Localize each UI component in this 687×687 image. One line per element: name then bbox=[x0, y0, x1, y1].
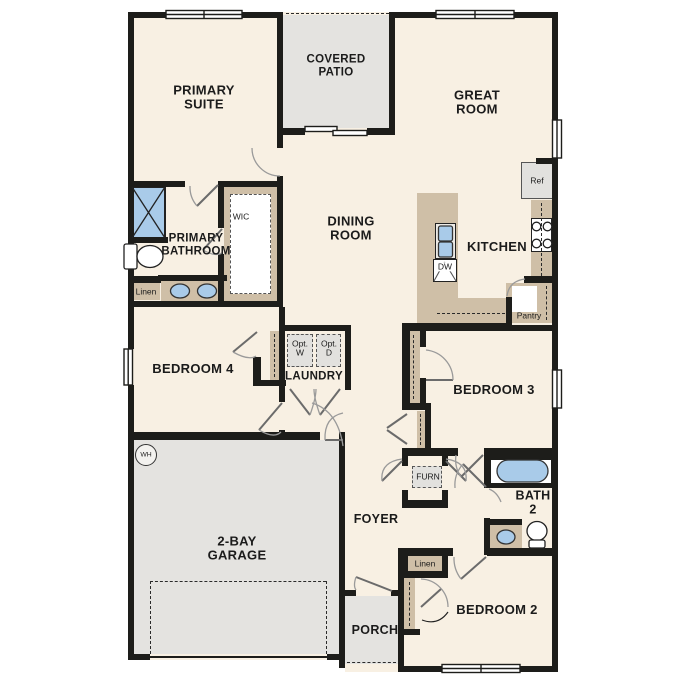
room-label-porch: PORCH bbox=[352, 624, 399, 638]
wall bbox=[402, 456, 408, 466]
wall bbox=[367, 128, 395, 135]
room-label-laundry: LAUNDRY bbox=[285, 371, 343, 384]
garage-door-threshold bbox=[150, 656, 327, 658]
room-label-linen-bath: Linen bbox=[136, 287, 157, 296]
wall bbox=[285, 325, 351, 331]
room-label-bedroom-4: BEDROOM 4 bbox=[152, 362, 233, 376]
room-label-bath-2: BATH 2 bbox=[516, 489, 551, 517]
garage-door-line-left bbox=[150, 581, 151, 654]
porch-open-edge bbox=[347, 662, 396, 663]
kitchen-island-counter-south bbox=[458, 298, 506, 323]
wall bbox=[339, 432, 345, 668]
room-label-primary-bathroom: PRIMARY BATHROOM bbox=[161, 232, 230, 257]
wall bbox=[490, 519, 522, 525]
wall bbox=[128, 301, 283, 307]
wall bbox=[520, 666, 558, 672]
wall bbox=[442, 490, 448, 500]
wall bbox=[283, 128, 305, 135]
bath2-vanity bbox=[490, 525, 522, 548]
wall bbox=[524, 276, 558, 283]
wall bbox=[128, 432, 320, 440]
room-label-bedroom-2: BEDROOM 2 bbox=[456, 603, 537, 617]
wall bbox=[345, 325, 351, 390]
wall bbox=[391, 590, 398, 596]
bedroom4-closet-line bbox=[274, 334, 275, 377]
shower bbox=[131, 186, 166, 239]
label-furnace: FURN bbox=[416, 472, 440, 481]
hall-closet-line bbox=[420, 414, 421, 445]
bath-vanity bbox=[161, 281, 220, 301]
wall bbox=[158, 275, 227, 281]
wall bbox=[402, 500, 448, 508]
wall bbox=[398, 548, 453, 556]
patio-open-edge bbox=[286, 13, 389, 14]
wall bbox=[345, 590, 356, 596]
floor-plan: PRIMARY SUITE COVERED PATIO GREAT ROOM D… bbox=[0, 0, 687, 687]
wall bbox=[128, 181, 185, 187]
room-label-kitchen: KITCHEN bbox=[467, 240, 527, 254]
wall bbox=[402, 490, 408, 500]
wall bbox=[218, 181, 283, 187]
wall bbox=[128, 276, 161, 283]
wall bbox=[410, 325, 558, 331]
wall bbox=[402, 448, 458, 456]
wall bbox=[391, 12, 436, 18]
label-dishwasher: DW bbox=[437, 262, 453, 271]
room-label-dining-room: DINING ROOM bbox=[327, 215, 374, 244]
wall bbox=[536, 158, 558, 164]
room-label-foyer: FOYER bbox=[354, 513, 399, 527]
label-opt-washer: Opt. W bbox=[292, 340, 308, 359]
tub-deck bbox=[491, 460, 551, 483]
wall bbox=[128, 654, 150, 660]
wall bbox=[277, 176, 283, 307]
label-refrigerator: Ref bbox=[530, 176, 543, 185]
room-label-bedroom-3: BEDROOM 3 bbox=[453, 383, 534, 397]
wic-shelf-line bbox=[230, 194, 271, 294]
garage-door-line-right bbox=[326, 581, 327, 654]
wall bbox=[218, 187, 224, 228]
wall bbox=[442, 456, 448, 466]
pantry-interior bbox=[512, 286, 537, 312]
wall bbox=[506, 297, 512, 328]
island-sink-box bbox=[435, 223, 456, 259]
wall bbox=[398, 629, 420, 635]
room-label-primary-suite: PRIMARY SUITE bbox=[173, 84, 235, 113]
wall bbox=[279, 383, 285, 402]
wall bbox=[420, 378, 426, 405]
wall bbox=[420, 331, 426, 347]
hall-closet-shelf bbox=[417, 411, 425, 448]
wall bbox=[128, 385, 134, 660]
room-label-garage: 2-BAY GARAGE bbox=[208, 535, 267, 564]
wall bbox=[487, 548, 558, 556]
room-label-wic: WIC bbox=[233, 212, 250, 221]
garage-door-line-top bbox=[150, 581, 326, 582]
label-water-heater: WH bbox=[140, 451, 151, 458]
wall bbox=[389, 12, 395, 135]
bedroom3-closet-line bbox=[413, 335, 414, 399]
room-label-covered-patio: COVERED PATIO bbox=[307, 53, 366, 78]
wall bbox=[398, 666, 442, 672]
island-overhang-line bbox=[437, 313, 505, 314]
wall bbox=[552, 158, 558, 370]
room-label-pantry: Pantry bbox=[517, 311, 542, 320]
room-label-great-room: GREAT ROOM bbox=[454, 89, 500, 118]
wall bbox=[425, 410, 431, 448]
wall bbox=[402, 403, 431, 410]
pantry-shelf-line bbox=[546, 286, 547, 320]
wall bbox=[402, 323, 410, 405]
label-opt-dryer: Opt. D bbox=[321, 340, 337, 359]
wall bbox=[402, 571, 448, 578]
wall bbox=[552, 12, 558, 120]
bedroom2-closet-line bbox=[409, 582, 410, 626]
room-label-linen-hall: Linen bbox=[415, 559, 436, 568]
counter-center-line bbox=[541, 203, 542, 276]
